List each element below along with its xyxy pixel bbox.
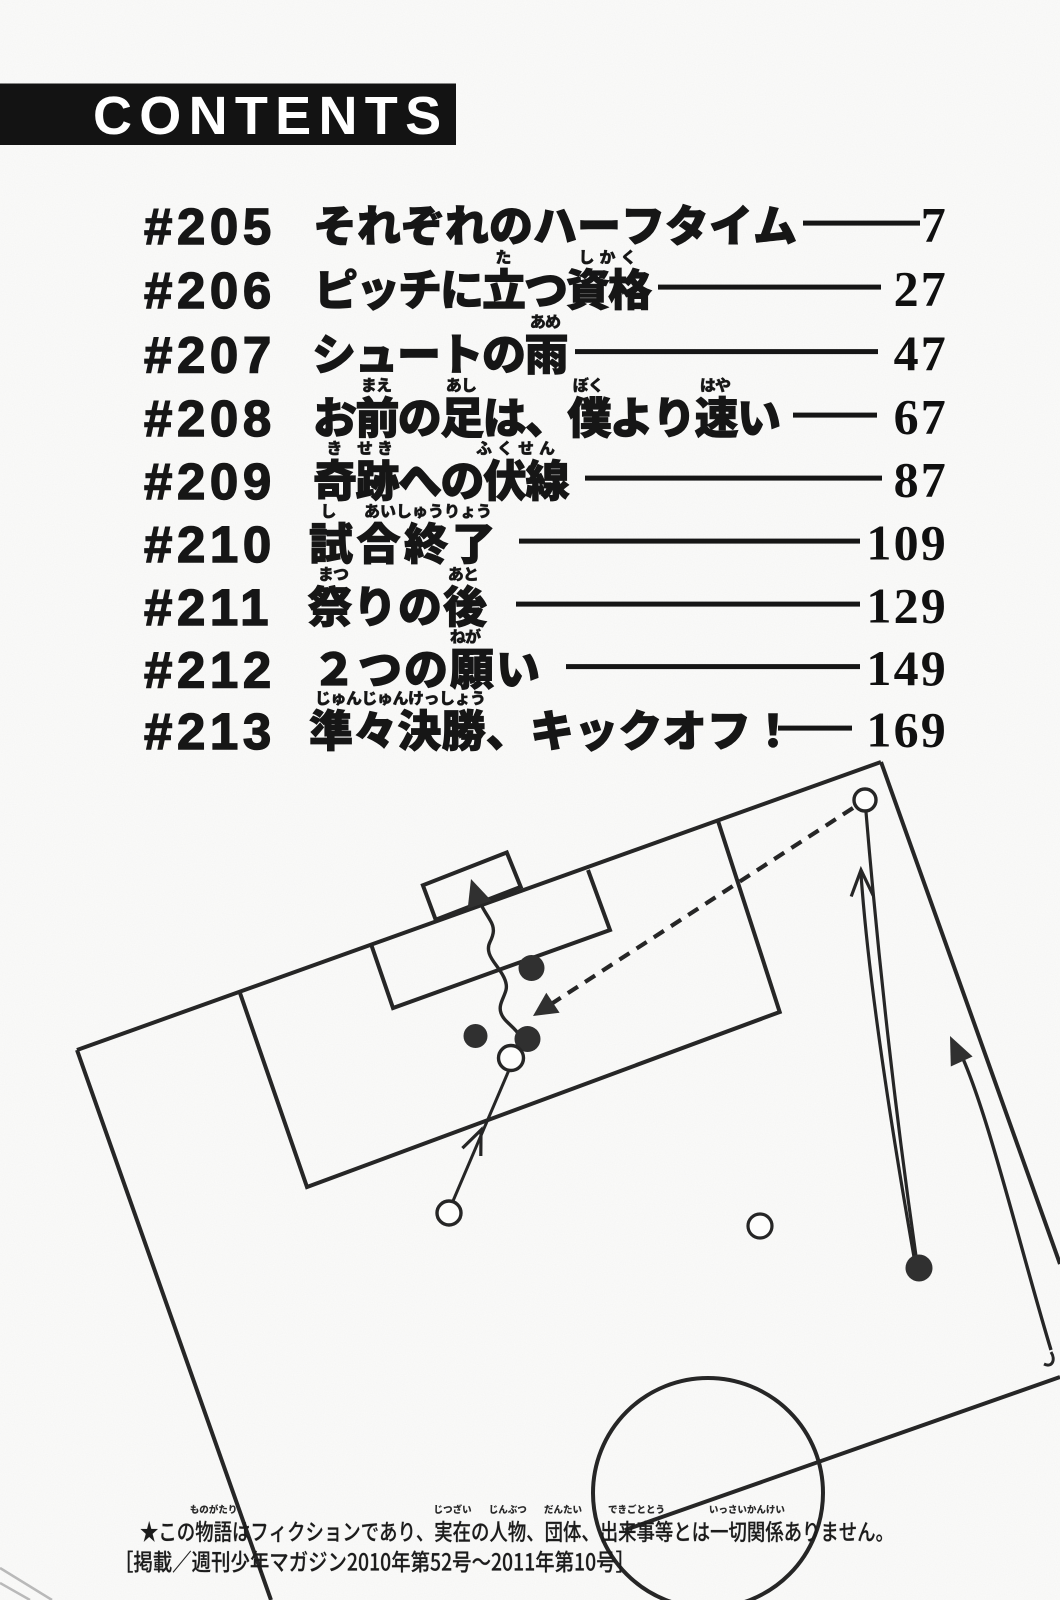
svg-text:109: 109 — [866, 514, 948, 570]
svg-text:87: 87 — [894, 451, 948, 507]
svg-text:#213: #213 — [144, 703, 276, 760]
svg-text:#208: #208 — [144, 390, 276, 447]
svg-text:129: 129 — [866, 577, 948, 633]
svg-text:#211: #211 — [144, 579, 273, 636]
svg-text:#209: #209 — [144, 453, 276, 510]
svg-text:149: 149 — [866, 640, 948, 696]
svg-text:#212: #212 — [144, 641, 276, 698]
svg-text:169: 169 — [866, 701, 948, 757]
svg-text:#206: #206 — [144, 262, 276, 319]
svg-text:47: 47 — [894, 325, 948, 381]
svg-text:CONTENTS: CONTENTS — [93, 86, 448, 146]
svg-text:#205: #205 — [144, 198, 276, 255]
svg-text:#207: #207 — [144, 326, 276, 383]
svg-text:#210: #210 — [144, 516, 276, 573]
svg-text:7: 7 — [921, 196, 948, 252]
svg-text:27: 27 — [894, 260, 948, 316]
svg-text:67: 67 — [894, 388, 948, 444]
